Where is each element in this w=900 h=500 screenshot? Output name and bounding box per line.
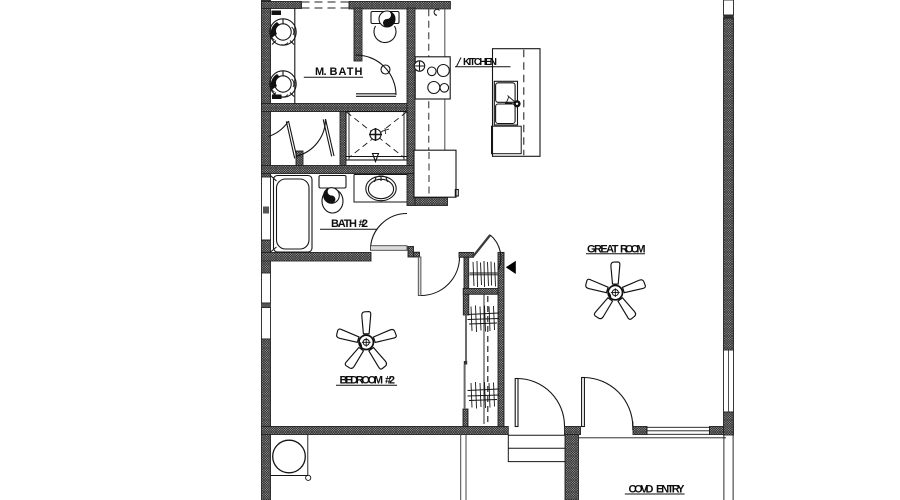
svg-text:M.: M. (315, 66, 327, 78)
svg-text:BATH: BATH (331, 218, 357, 230)
svg-text:#2: #2 (359, 218, 369, 230)
svg-text:KITCHEN: KITCHEN (463, 57, 497, 68)
svg-text:BATH: BATH (330, 66, 363, 78)
svg-text:BEDROOM: BEDROOM (340, 375, 384, 387)
svg-text:#2: #2 (385, 375, 395, 387)
